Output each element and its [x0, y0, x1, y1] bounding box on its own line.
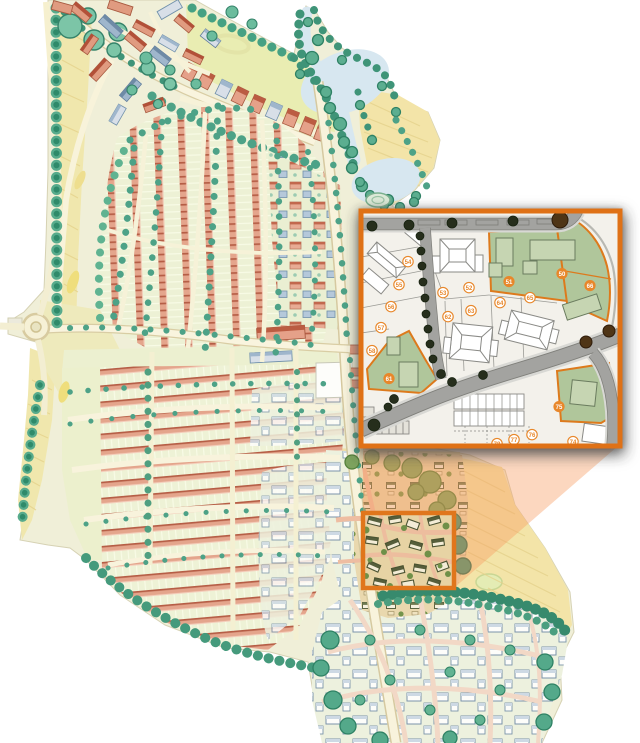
svg-text:51: 51 [506, 280, 513, 286]
svg-text:57: 57 [378, 326, 385, 332]
svg-text:50: 50 [559, 272, 566, 278]
svg-text:55: 55 [396, 283, 403, 289]
svg-text:76: 76 [529, 433, 536, 439]
svg-text:52: 52 [466, 286, 473, 292]
svg-text:77: 77 [511, 438, 518, 444]
svg-text:75: 75 [556, 405, 563, 411]
svg-text:64: 64 [497, 301, 504, 307]
svg-text:65: 65 [527, 296, 534, 302]
svg-text:61: 61 [386, 377, 393, 383]
svg-text:58: 58 [369, 349, 376, 355]
svg-text:54: 54 [405, 260, 412, 266]
svg-text:56: 56 [388, 305, 395, 311]
svg-text:63: 63 [468, 309, 475, 315]
svg-text:53: 53 [440, 291, 447, 297]
svg-text:62: 62 [445, 315, 452, 321]
svg-text:66: 66 [587, 284, 594, 290]
